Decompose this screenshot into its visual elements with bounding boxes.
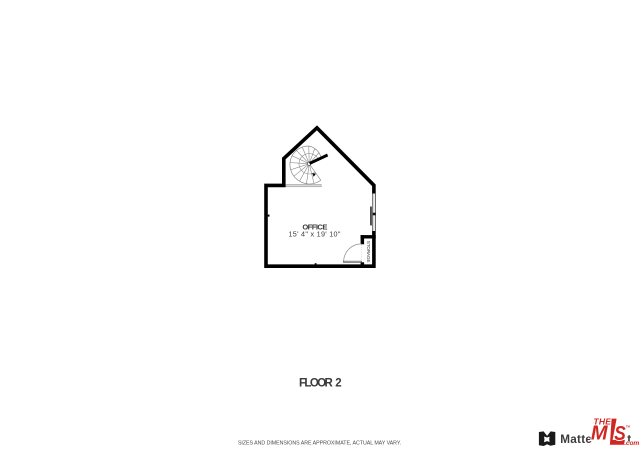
svg-text:TM: TM [626,424,631,428]
svg-text:M: M [591,423,609,445]
svg-text:FLOOR: FLOOR [299,378,334,390]
svg-text:SIZES AND DIMENSIONS ARE APPRO: SIZES AND DIMENSIONS ARE APPROXIMATE, AC… [238,441,401,447]
svg-text:STORAGE: STORAGE [366,241,371,263]
svg-text:.com: .com [624,440,639,447]
svg-text:2: 2 [335,378,341,390]
svg-text:15' 4" x 19' 10": 15' 4" x 19' 10" [288,230,340,239]
svg-text:Matte: Matte [560,433,592,446]
